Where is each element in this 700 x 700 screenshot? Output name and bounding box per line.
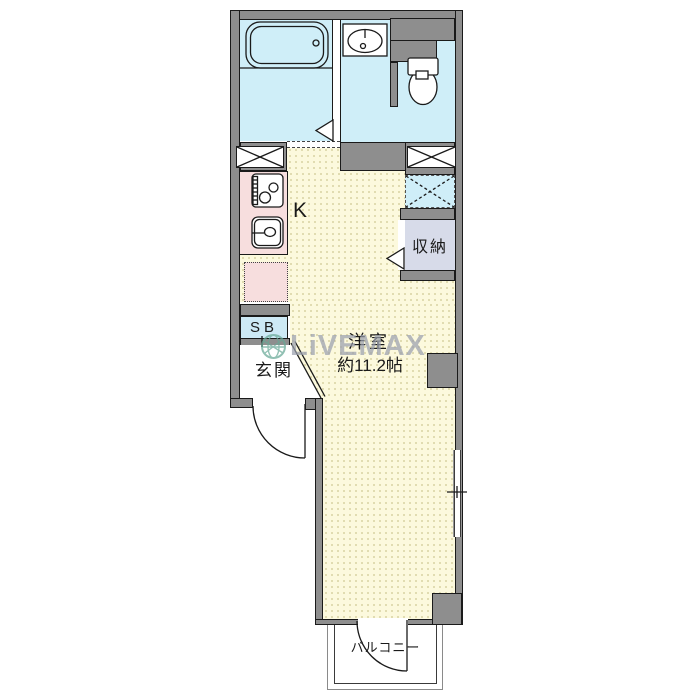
pipe-space-left: [236, 146, 284, 168]
floorplan-canvas: 収納 SB: [0, 0, 700, 700]
pipe-space-right: [407, 146, 456, 168]
balcony-label: バルコニー: [334, 638, 437, 655]
entrance-door-swing-icon: [253, 404, 305, 458]
toilet-floor-notch: [437, 41, 455, 63]
main-room-floor-doorway: [287, 147, 340, 171]
wall-toilet-block-a: [390, 18, 455, 41]
watermark-text: LiVEMAX: [290, 330, 426, 363]
wall-kitchen-band: [240, 304, 290, 316]
globe-icon: [260, 333, 287, 360]
kitchen-counter: [240, 171, 288, 255]
bathroom-floor: [240, 20, 333, 141]
fridge-space: [244, 262, 288, 302]
wall-genkan-left: [230, 398, 253, 408]
wall-closet-top: [400, 208, 455, 220]
washer-space: [405, 175, 455, 208]
main-room-floor-bottom: [323, 398, 455, 619]
window-right-gap: [453, 450, 462, 537]
balcony-label-text: バルコニー: [351, 637, 421, 656]
wall-toilet-stub: [390, 62, 398, 107]
closet-label: 収納: [412, 233, 448, 257]
wall-toilet-block-b: [390, 40, 437, 62]
watermark: LiVEMAX: [260, 330, 426, 363]
kitchen-label: K: [293, 199, 307, 223]
pillar-bottom-right: [432, 593, 462, 625]
bath-door-strip: [287, 141, 340, 148]
wall-band-mid: [340, 142, 406, 171]
closet-door-gap: [398, 220, 405, 270]
wall-lower-left: [315, 398, 323, 625]
wall-left: [230, 10, 240, 408]
wall-closet-bottom: [400, 270, 455, 281]
pillar-mid-right: [427, 353, 458, 388]
closet-room: 収納: [405, 220, 455, 270]
washroom-floor: [340, 20, 390, 142]
toilet-floor: [397, 62, 455, 142]
